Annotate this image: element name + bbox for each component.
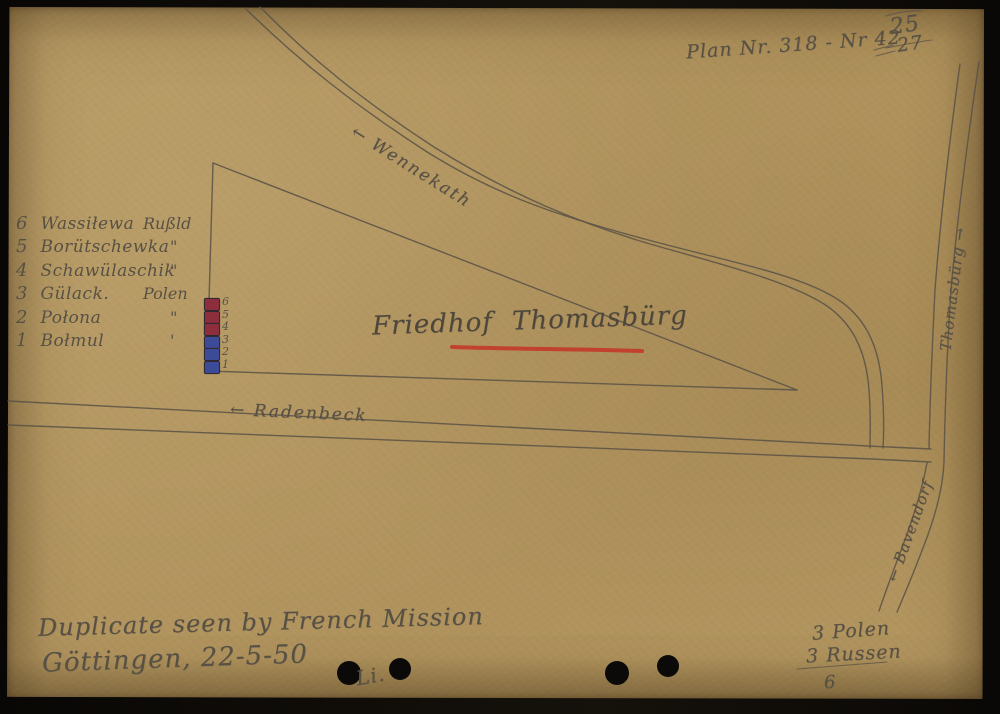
grave-row: 6 Wassiłewa Rußld — [16, 213, 246, 236]
punch-hole — [657, 655, 679, 677]
grave-plot-square-4 — [204, 323, 220, 336]
red-underline — [452, 347, 642, 351]
grave-name: Borütschewka — [40, 237, 169, 257]
grave-plot-square-1 — [204, 361, 220, 374]
punch-hole — [389, 658, 411, 680]
site-title-thomasburg: Thomasbürg — [512, 300, 689, 336]
plot-square-label: 2 — [222, 345, 229, 358]
map-line-drawing — [0, 0, 1000, 714]
signature: Li. — [354, 662, 387, 691]
grave-row: 4 Schawülaschik " — [16, 260, 246, 283]
grave-nationality: Polen — [143, 284, 188, 303]
grave-number: 6 — [16, 213, 36, 234]
grave-row: 5 Borütschewka " — [16, 236, 246, 259]
grave-name: Schawülaschik — [40, 261, 175, 281]
road-thomasburg-lines — [879, 62, 979, 612]
grave-name: Połona — [40, 308, 101, 328]
grave-name: Wassiłewa — [40, 214, 134, 234]
plot-square-label: 4 — [222, 320, 229, 333]
tally-total: 6 — [823, 672, 837, 694]
grave-number: 5 — [16, 236, 36, 257]
site-title-friedhof: Friedhof — [372, 307, 494, 341]
grave-number: 3 — [16, 283, 36, 304]
grave-nationality: Rußld — [143, 214, 191, 233]
scanned-document: Plan Nr. 318 - Nr 42 25 27 ← Wennekath ←… — [0, 0, 1000, 714]
grave-nationality-ditto: " — [170, 237, 177, 256]
grave-plot-square-2 — [204, 348, 220, 361]
cemetery-plot-outline — [207, 163, 797, 390]
grave-number: 1 — [16, 330, 36, 351]
plot-square-label: 1 — [222, 358, 229, 371]
grave-name: Bołmul — [40, 331, 104, 351]
grave-nationality-ditto: " — [170, 308, 177, 327]
grave-name: Gülack. — [40, 284, 109, 304]
grave-number: 2 — [16, 307, 36, 328]
road-radenbeck-lines — [8, 401, 931, 462]
punch-hole — [605, 661, 629, 685]
grave-plot-square-6 — [204, 298, 220, 311]
grave-nationality-ditto: " — [170, 261, 177, 280]
grave-number: 4 — [16, 260, 36, 281]
grave-nationality-ditto: ' — [170, 331, 174, 350]
plan-number-crossed: 27 — [896, 31, 925, 56]
plot-square-label: 6 — [222, 295, 229, 308]
